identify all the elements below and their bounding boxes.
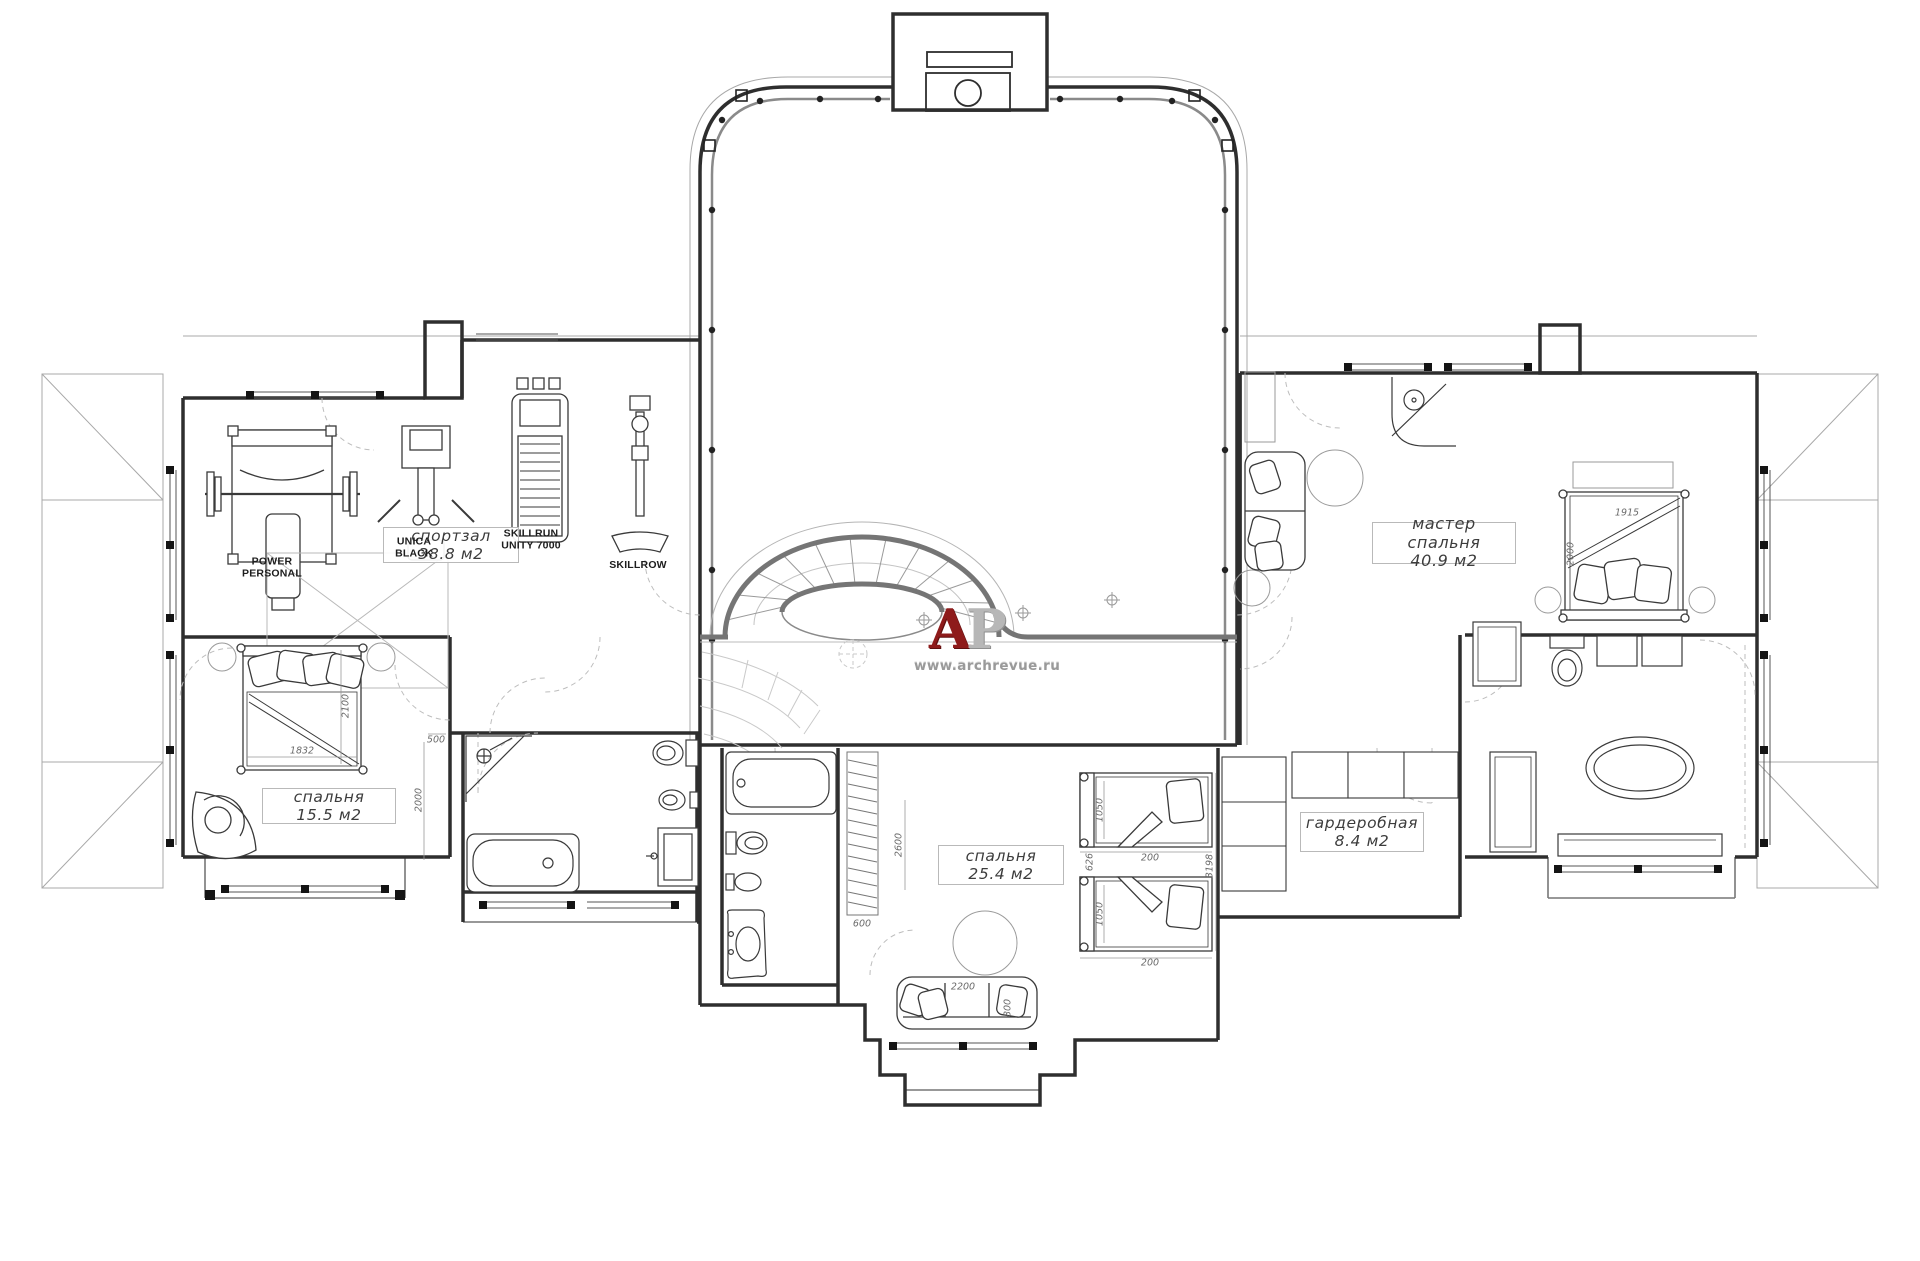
- floor-plan: спортзал 38.8 м2 мастер спальня 40.9 м2 …: [0, 0, 1920, 1261]
- watermark-url: www.archrevue.ru: [914, 658, 1060, 674]
- room-area: 25.4 м2: [939, 865, 1063, 883]
- room-name: гардеробная: [1301, 814, 1423, 832]
- room-label-wardrobe: гардеробная 8.4 м2: [1300, 812, 1424, 852]
- equip-label-rower: SKILLROW: [600, 560, 676, 572]
- dim-bed15-offset: 500: [427, 735, 445, 746]
- toilet-icon: [653, 740, 698, 766]
- dim-master-width: 1915: [1615, 508, 1639, 519]
- gym-power-rack-icon: [205, 426, 360, 610]
- dim-kids-offset2: 200: [1141, 958, 1159, 969]
- room-name: мастер спальня: [1373, 515, 1515, 553]
- dim-kids-bed1: 1050: [1095, 798, 1106, 822]
- dim-kids-offset1: 200: [1141, 853, 1159, 864]
- equip-label-power-rack: POWER PERSONAL: [232, 556, 312, 580]
- room-area: 40.9 м2: [1373, 552, 1515, 571]
- room-area: 15.5 м2: [263, 806, 395, 824]
- pedestal-sink-icon: [728, 910, 767, 978]
- room-label-bedroom-kids: спальня 25.4 м2: [938, 845, 1064, 885]
- dim-sofa-depth: 800: [1003, 999, 1014, 1017]
- rug-circle: [953, 911, 1017, 975]
- master-bath-fixtures: [1473, 622, 1722, 856]
- vanity-sink-icon: [646, 828, 698, 886]
- room-label-bedroom-small: спальня 15.5 м2: [262, 788, 396, 824]
- master-sofa-icon: [1245, 452, 1305, 572]
- room-label-master-bedroom: мастер спальня 40.9 м2: [1372, 522, 1516, 564]
- master-bed-icon: [1559, 462, 1689, 622]
- room-name: спальня: [939, 847, 1063, 865]
- rowing-machine-icon: [612, 396, 668, 552]
- dim-bed15-wall: 2000: [414, 788, 425, 812]
- dim-rail-width: 600: [853, 919, 871, 930]
- shower-icon: [466, 736, 532, 802]
- chimney-block: [926, 52, 1012, 111]
- terrace-layer: [205, 857, 1735, 1090]
- watermark-letter-a: А: [928, 597, 966, 661]
- dim-bed15-length: 2100: [341, 694, 352, 718]
- treadmill-icon: [512, 378, 568, 542]
- dim-master-length: 2000: [1566, 542, 1577, 566]
- room-name: спальня: [263, 788, 395, 806]
- dim-bed15-width: 1832: [290, 746, 314, 757]
- dim-sofa-width: 2200: [951, 982, 975, 993]
- watermark-logo: АР: [928, 602, 1001, 656]
- bidet2-icon: [726, 873, 761, 891]
- towel-radiator-icon: [847, 752, 878, 915]
- dim-kids-bed2: 1050: [1095, 902, 1106, 926]
- bidet-icon: [659, 790, 698, 810]
- dim-kids-gap: 626: [1085, 853, 1096, 871]
- equip-label-treadmill: SKILLRUN UNITY 7000: [499, 528, 563, 552]
- dim-kids-total: 3198: [1205, 854, 1216, 878]
- equip-label-press-machine: UNICA BLACK: [386, 536, 442, 560]
- armchair-icon: [192, 792, 256, 859]
- bathtub2-icon: [726, 752, 836, 814]
- toilet2-icon: [726, 832, 767, 854]
- dim-bath-height: 2600: [894, 833, 905, 857]
- corner-shower-icon: [1392, 377, 1456, 446]
- cabinet-icon: [1245, 372, 1275, 442]
- room-area: 8.4 м2: [1301, 832, 1423, 850]
- bathtub-icon: [467, 834, 579, 892]
- watermark-letter-p: Р: [966, 597, 1001, 661]
